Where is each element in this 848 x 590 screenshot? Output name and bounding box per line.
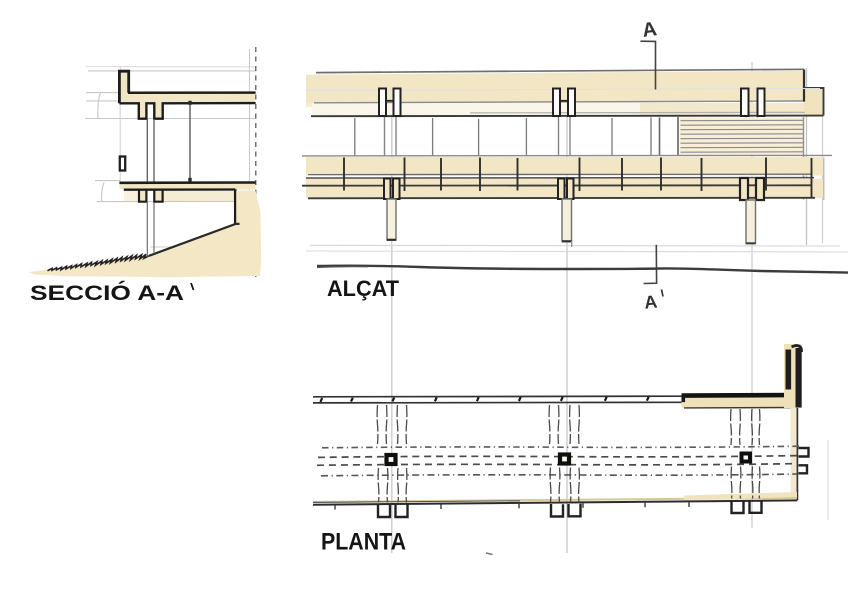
svg-text:A: A: [641, 18, 658, 42]
svg-text:ALÇAT: ALÇAT: [327, 276, 399, 301]
svg-text:SECCIÓ A-A: SECCIÓ A-A: [30, 281, 184, 305]
svg-text:A: A: [643, 292, 658, 313]
svg-text:PLANTA: PLANTA: [321, 529, 406, 556]
